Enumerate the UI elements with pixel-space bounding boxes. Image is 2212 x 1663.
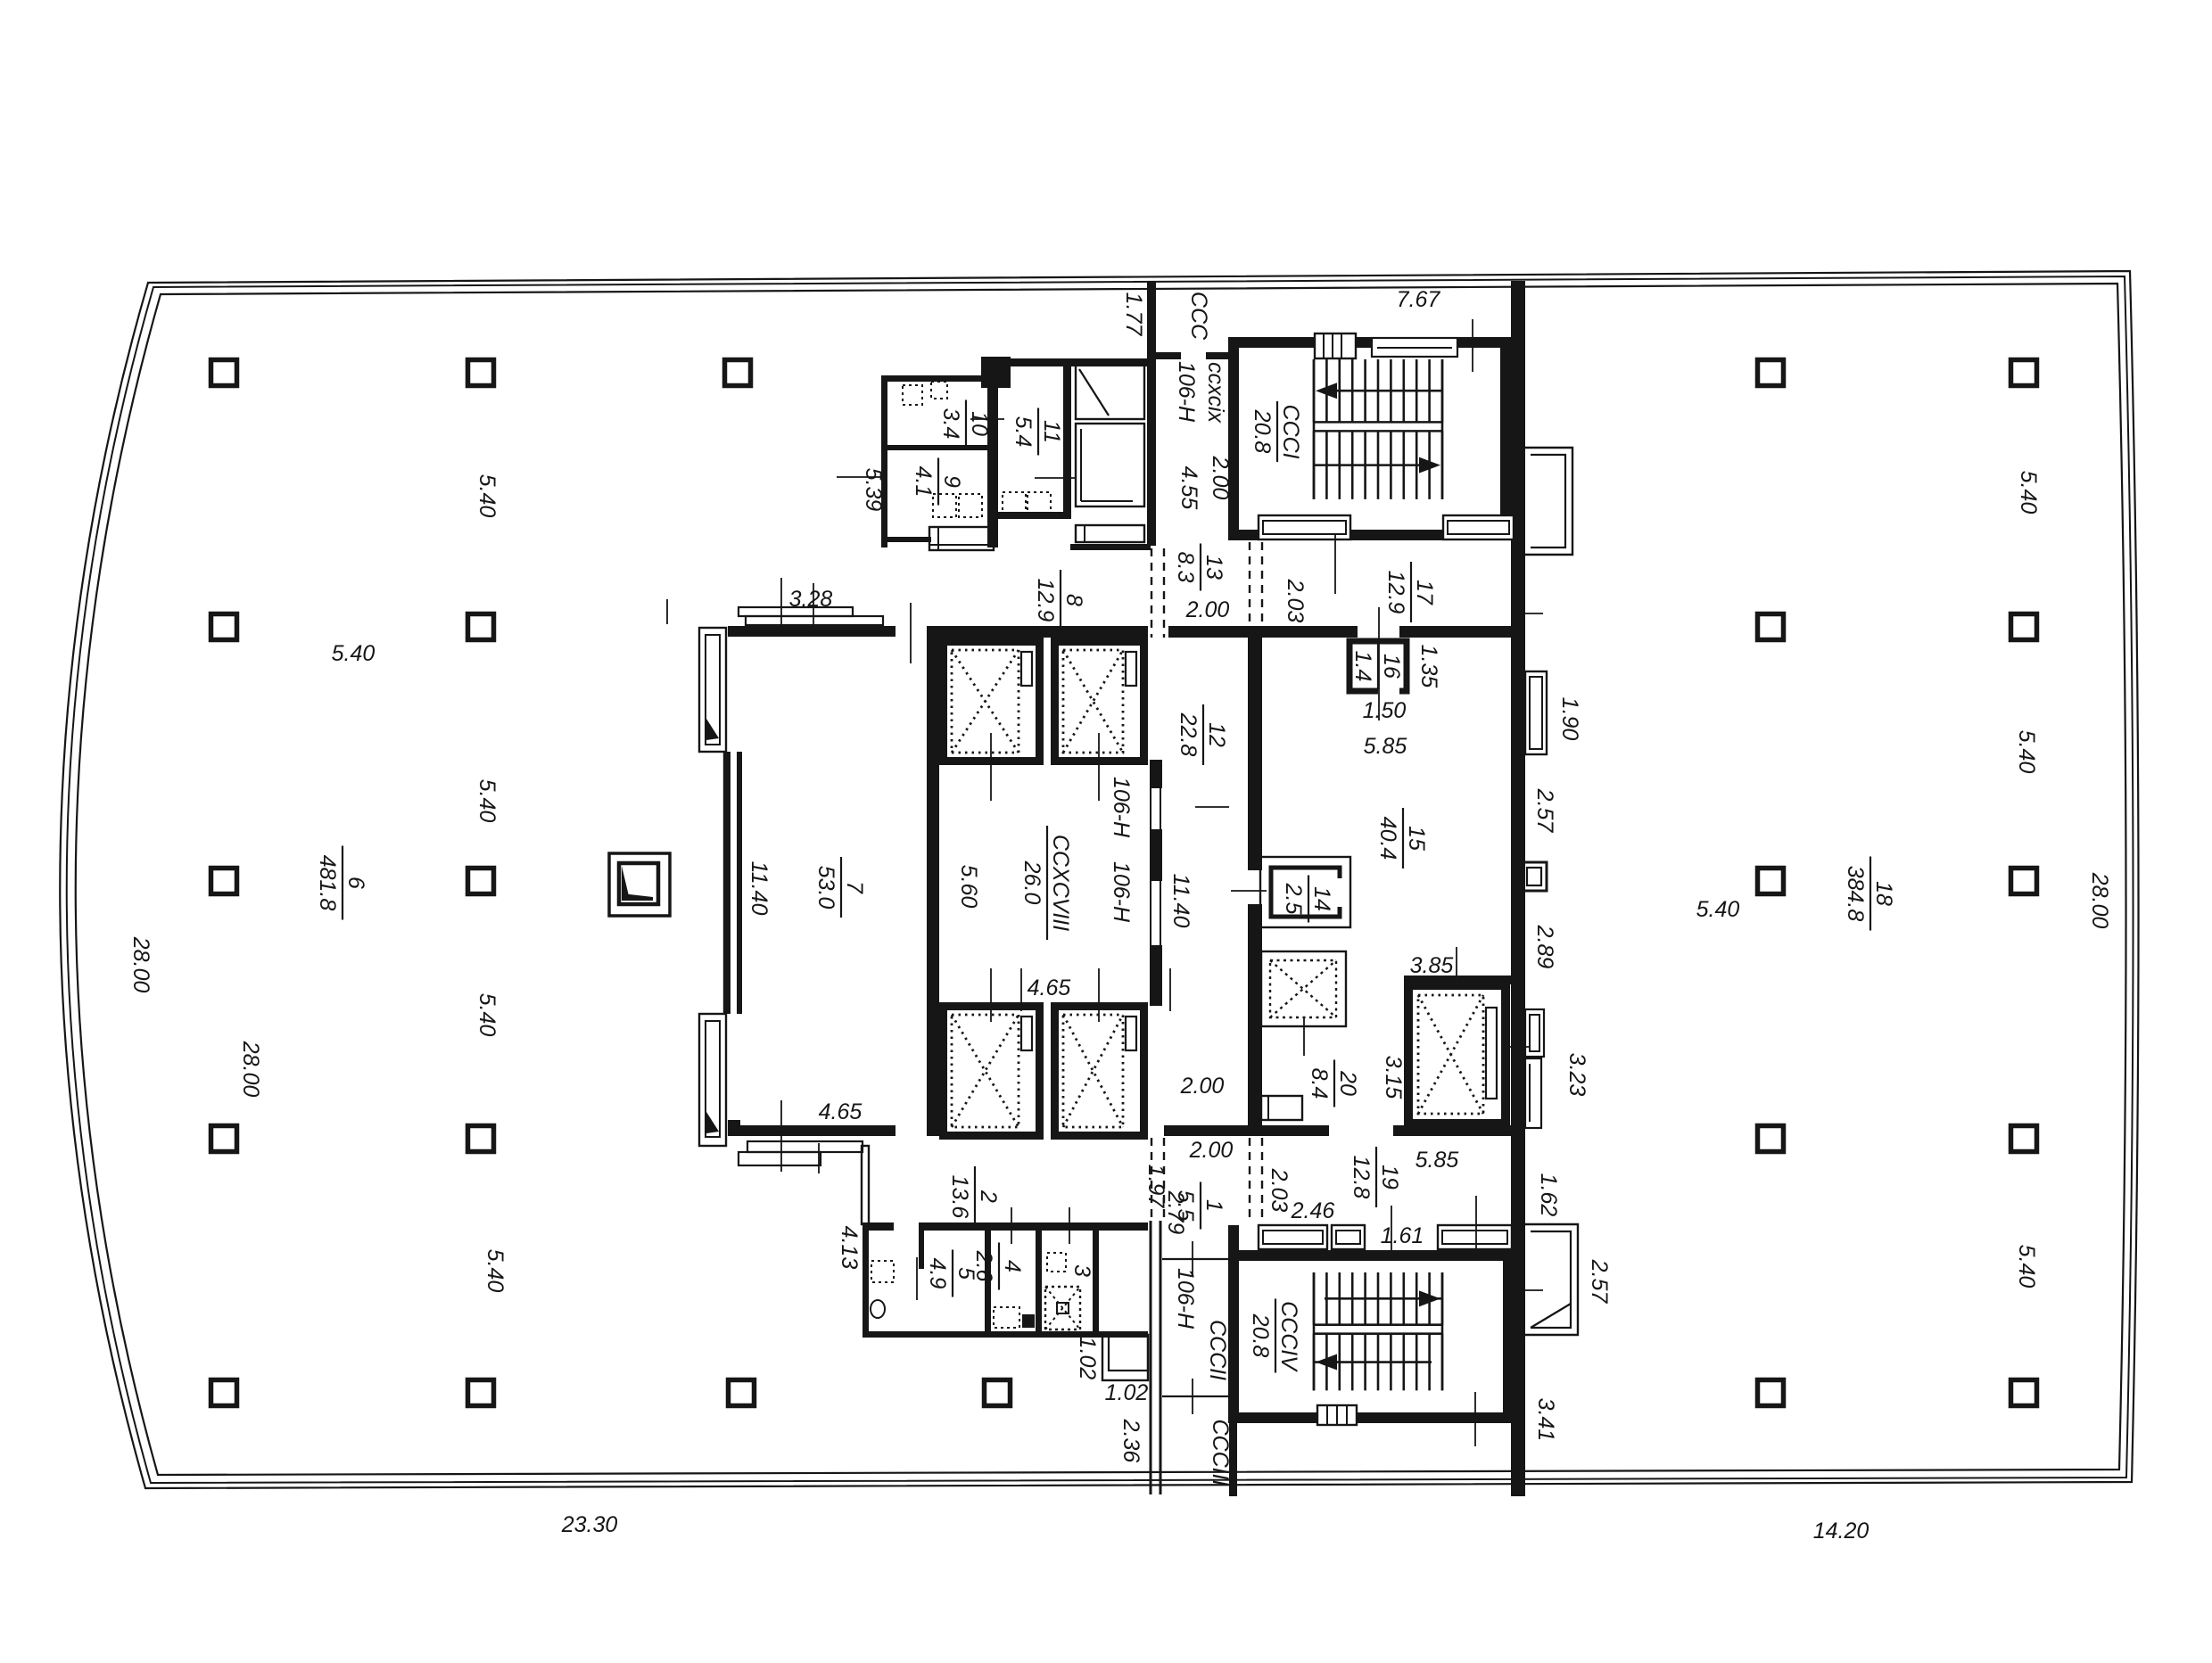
- svg-text:13.6: 13.6: [947, 1175, 972, 1219]
- svg-text:53.0: 53.0: [813, 866, 838, 910]
- svg-text:3.28: 3.28: [789, 587, 833, 612]
- svg-text:11.40: 11.40: [1168, 874, 1193, 928]
- svg-text:106-H: 106-H: [1174, 361, 1199, 423]
- svg-text:17: 17: [1412, 580, 1437, 605]
- svg-text:1.4: 1.4: [1350, 651, 1375, 682]
- svg-text:3.85: 3.85: [1410, 953, 1454, 978]
- svg-text:12.8: 12.8: [1349, 1156, 1374, 1199]
- svg-text:5.5: 5.5: [1173, 1190, 1198, 1222]
- svg-text:384.8: 384.8: [1843, 866, 1868, 922]
- svg-text:2.03: 2.03: [1267, 1168, 1292, 1213]
- svg-text:106-H: 106-H: [1173, 1268, 1198, 1330]
- svg-text:2.57: 2.57: [1587, 1259, 1612, 1305]
- svg-text:5.40: 5.40: [475, 993, 499, 1037]
- svg-text:3.23: 3.23: [1564, 1053, 1589, 1097]
- svg-text:5.4: 5.4: [1011, 416, 1036, 448]
- svg-text:16: 16: [1379, 654, 1404, 679]
- svg-text:CCCIV: CCCIV: [1276, 1301, 1301, 1372]
- svg-text:5.60: 5.60: [956, 865, 981, 909]
- svg-text:5.85: 5.85: [1416, 1148, 1459, 1173]
- svg-text:CCCII: CCCII: [1205, 1320, 1230, 1380]
- svg-text:20.8: 20.8: [1250, 409, 1275, 454]
- svg-text:3.41: 3.41: [1533, 1398, 1558, 1442]
- svg-text:40.4: 40.4: [1375, 817, 1400, 860]
- svg-text:5.40: 5.40: [475, 474, 499, 518]
- svg-text:2.00: 2.00: [1185, 597, 1230, 622]
- svg-text:4.65: 4.65: [1028, 976, 1071, 1000]
- svg-text:5.40: 5.40: [332, 641, 376, 666]
- svg-text:28.00: 28.00: [128, 936, 153, 993]
- svg-text:3.4: 3.4: [938, 408, 963, 440]
- svg-text:11.40: 11.40: [747, 861, 772, 916]
- svg-text:2.89: 2.89: [1532, 925, 1557, 969]
- svg-text:2.36: 2.36: [1118, 1419, 1143, 1463]
- svg-text:2.5: 2.5: [1281, 883, 1306, 915]
- svg-text:4.55: 4.55: [1176, 466, 1201, 510]
- svg-text:5.40: 5.40: [1696, 897, 1740, 922]
- svg-text:7.67: 7.67: [1397, 287, 1441, 312]
- svg-text:1.02: 1.02: [1075, 1337, 1100, 1380]
- svg-text:106-H: 106-H: [1109, 777, 1134, 838]
- svg-text:4: 4: [1000, 1260, 1025, 1272]
- svg-text:14.20: 14.20: [1813, 1519, 1869, 1544]
- svg-text:2.00: 2.00: [1208, 456, 1233, 500]
- svg-text:12: 12: [1204, 722, 1229, 747]
- svg-text:CCCIII: CCCIII: [1208, 1420, 1233, 1486]
- svg-text:5.40: 5.40: [475, 779, 499, 823]
- svg-text:5.40: 5.40: [2014, 730, 2039, 774]
- svg-text:1.35: 1.35: [1416, 645, 1441, 688]
- svg-text:3: 3: [1069, 1264, 1094, 1277]
- svg-text:2: 2: [976, 1190, 1001, 1203]
- svg-text:1.62: 1.62: [1536, 1173, 1561, 1217]
- svg-text:1.50: 1.50: [1363, 698, 1407, 723]
- svg-text:CCXCVIII: CCXCVIII: [1048, 835, 1073, 931]
- svg-text:481.8: 481.8: [315, 855, 340, 911]
- svg-text:28.00: 28.00: [2087, 872, 2112, 929]
- svg-text:2.46: 2.46: [1291, 1198, 1335, 1223]
- svg-text:12.9: 12.9: [1383, 571, 1408, 614]
- svg-text:15: 15: [1404, 826, 1429, 851]
- svg-text:3.15: 3.15: [1381, 1056, 1406, 1099]
- svg-text:6: 6: [343, 877, 368, 889]
- svg-text:4.9: 4.9: [925, 1258, 950, 1289]
- svg-text:12.9: 12.9: [1033, 579, 1058, 622]
- svg-text:1.90: 1.90: [1557, 697, 1582, 741]
- svg-text:2.03: 2.03: [1283, 579, 1308, 623]
- svg-text:5.40: 5.40: [2014, 1245, 2039, 1288]
- svg-text:11: 11: [1039, 420, 1064, 443]
- svg-text:1.61: 1.61: [1381, 1223, 1424, 1248]
- svg-text:4.65: 4.65: [819, 1099, 863, 1124]
- svg-text:8.4: 8.4: [1307, 1068, 1332, 1099]
- svg-text:5.39: 5.39: [861, 468, 886, 512]
- svg-text:8: 8: [1061, 594, 1086, 606]
- svg-text:CCCI: CCCI: [1278, 404, 1303, 458]
- svg-text:18: 18: [1871, 881, 1896, 906]
- svg-text:19: 19: [1377, 1165, 1402, 1190]
- svg-text:1: 1: [1201, 1199, 1226, 1212]
- svg-text:4.1: 4.1: [911, 466, 936, 498]
- svg-text:5.40: 5.40: [483, 1249, 508, 1293]
- svg-text:1.77: 1.77: [1121, 292, 1146, 337]
- svg-text:8.3: 8.3: [1173, 552, 1198, 583]
- svg-text:22.8: 22.8: [1176, 712, 1201, 757]
- svg-text:10: 10: [967, 411, 992, 436]
- svg-text:CCC: CCC: [1186, 292, 1211, 341]
- svg-text:7: 7: [842, 881, 867, 894]
- svg-text:2.57: 2.57: [1532, 788, 1557, 834]
- svg-text:14: 14: [1309, 886, 1334, 911]
- svg-text:106-H: 106-H: [1109, 861, 1134, 923]
- svg-text:28.00: 28.00: [238, 1041, 263, 1098]
- svg-text:2.00: 2.00: [1180, 1074, 1225, 1099]
- svg-text:20: 20: [1335, 1070, 1360, 1096]
- svg-text:2.00: 2.00: [1189, 1138, 1234, 1163]
- svg-text:26.0: 26.0: [1019, 860, 1044, 905]
- svg-text:20.8: 20.8: [1248, 1313, 1273, 1358]
- svg-text:23.30: 23.30: [561, 1512, 618, 1537]
- svg-text:4.13: 4.13: [837, 1226, 862, 1270]
- svg-text:ccxcix: ccxcix: [1203, 362, 1228, 424]
- svg-text:2.6: 2.6: [971, 1250, 996, 1282]
- svg-text:5.85: 5.85: [1364, 734, 1407, 759]
- svg-text:5.40: 5.40: [2016, 471, 2041, 515]
- svg-text:1.02: 1.02: [1105, 1380, 1149, 1405]
- svg-text:9: 9: [939, 475, 964, 488]
- svg-text:13: 13: [1201, 555, 1226, 580]
